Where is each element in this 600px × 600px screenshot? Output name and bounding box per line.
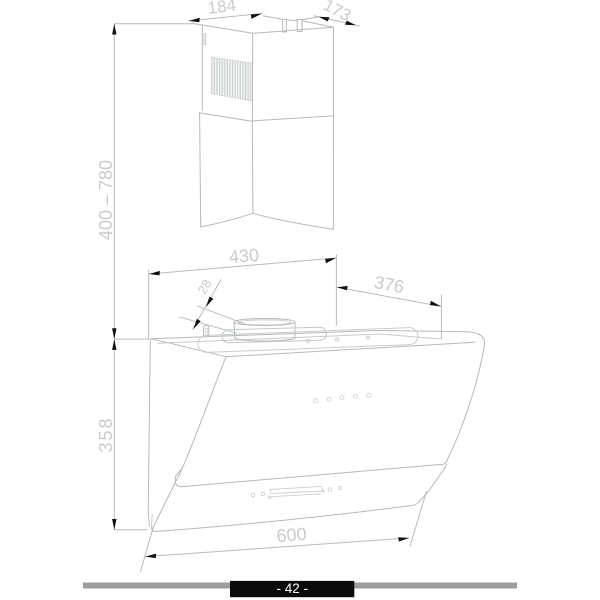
svg-text:430: 430: [228, 245, 260, 268]
svg-text:- 42 -: - 42 -: [277, 581, 309, 596]
svg-text:358: 358: [96, 416, 116, 452]
svg-text:600: 600: [276, 524, 308, 546]
svg-text:400 – 780: 400 – 780: [96, 160, 116, 240]
